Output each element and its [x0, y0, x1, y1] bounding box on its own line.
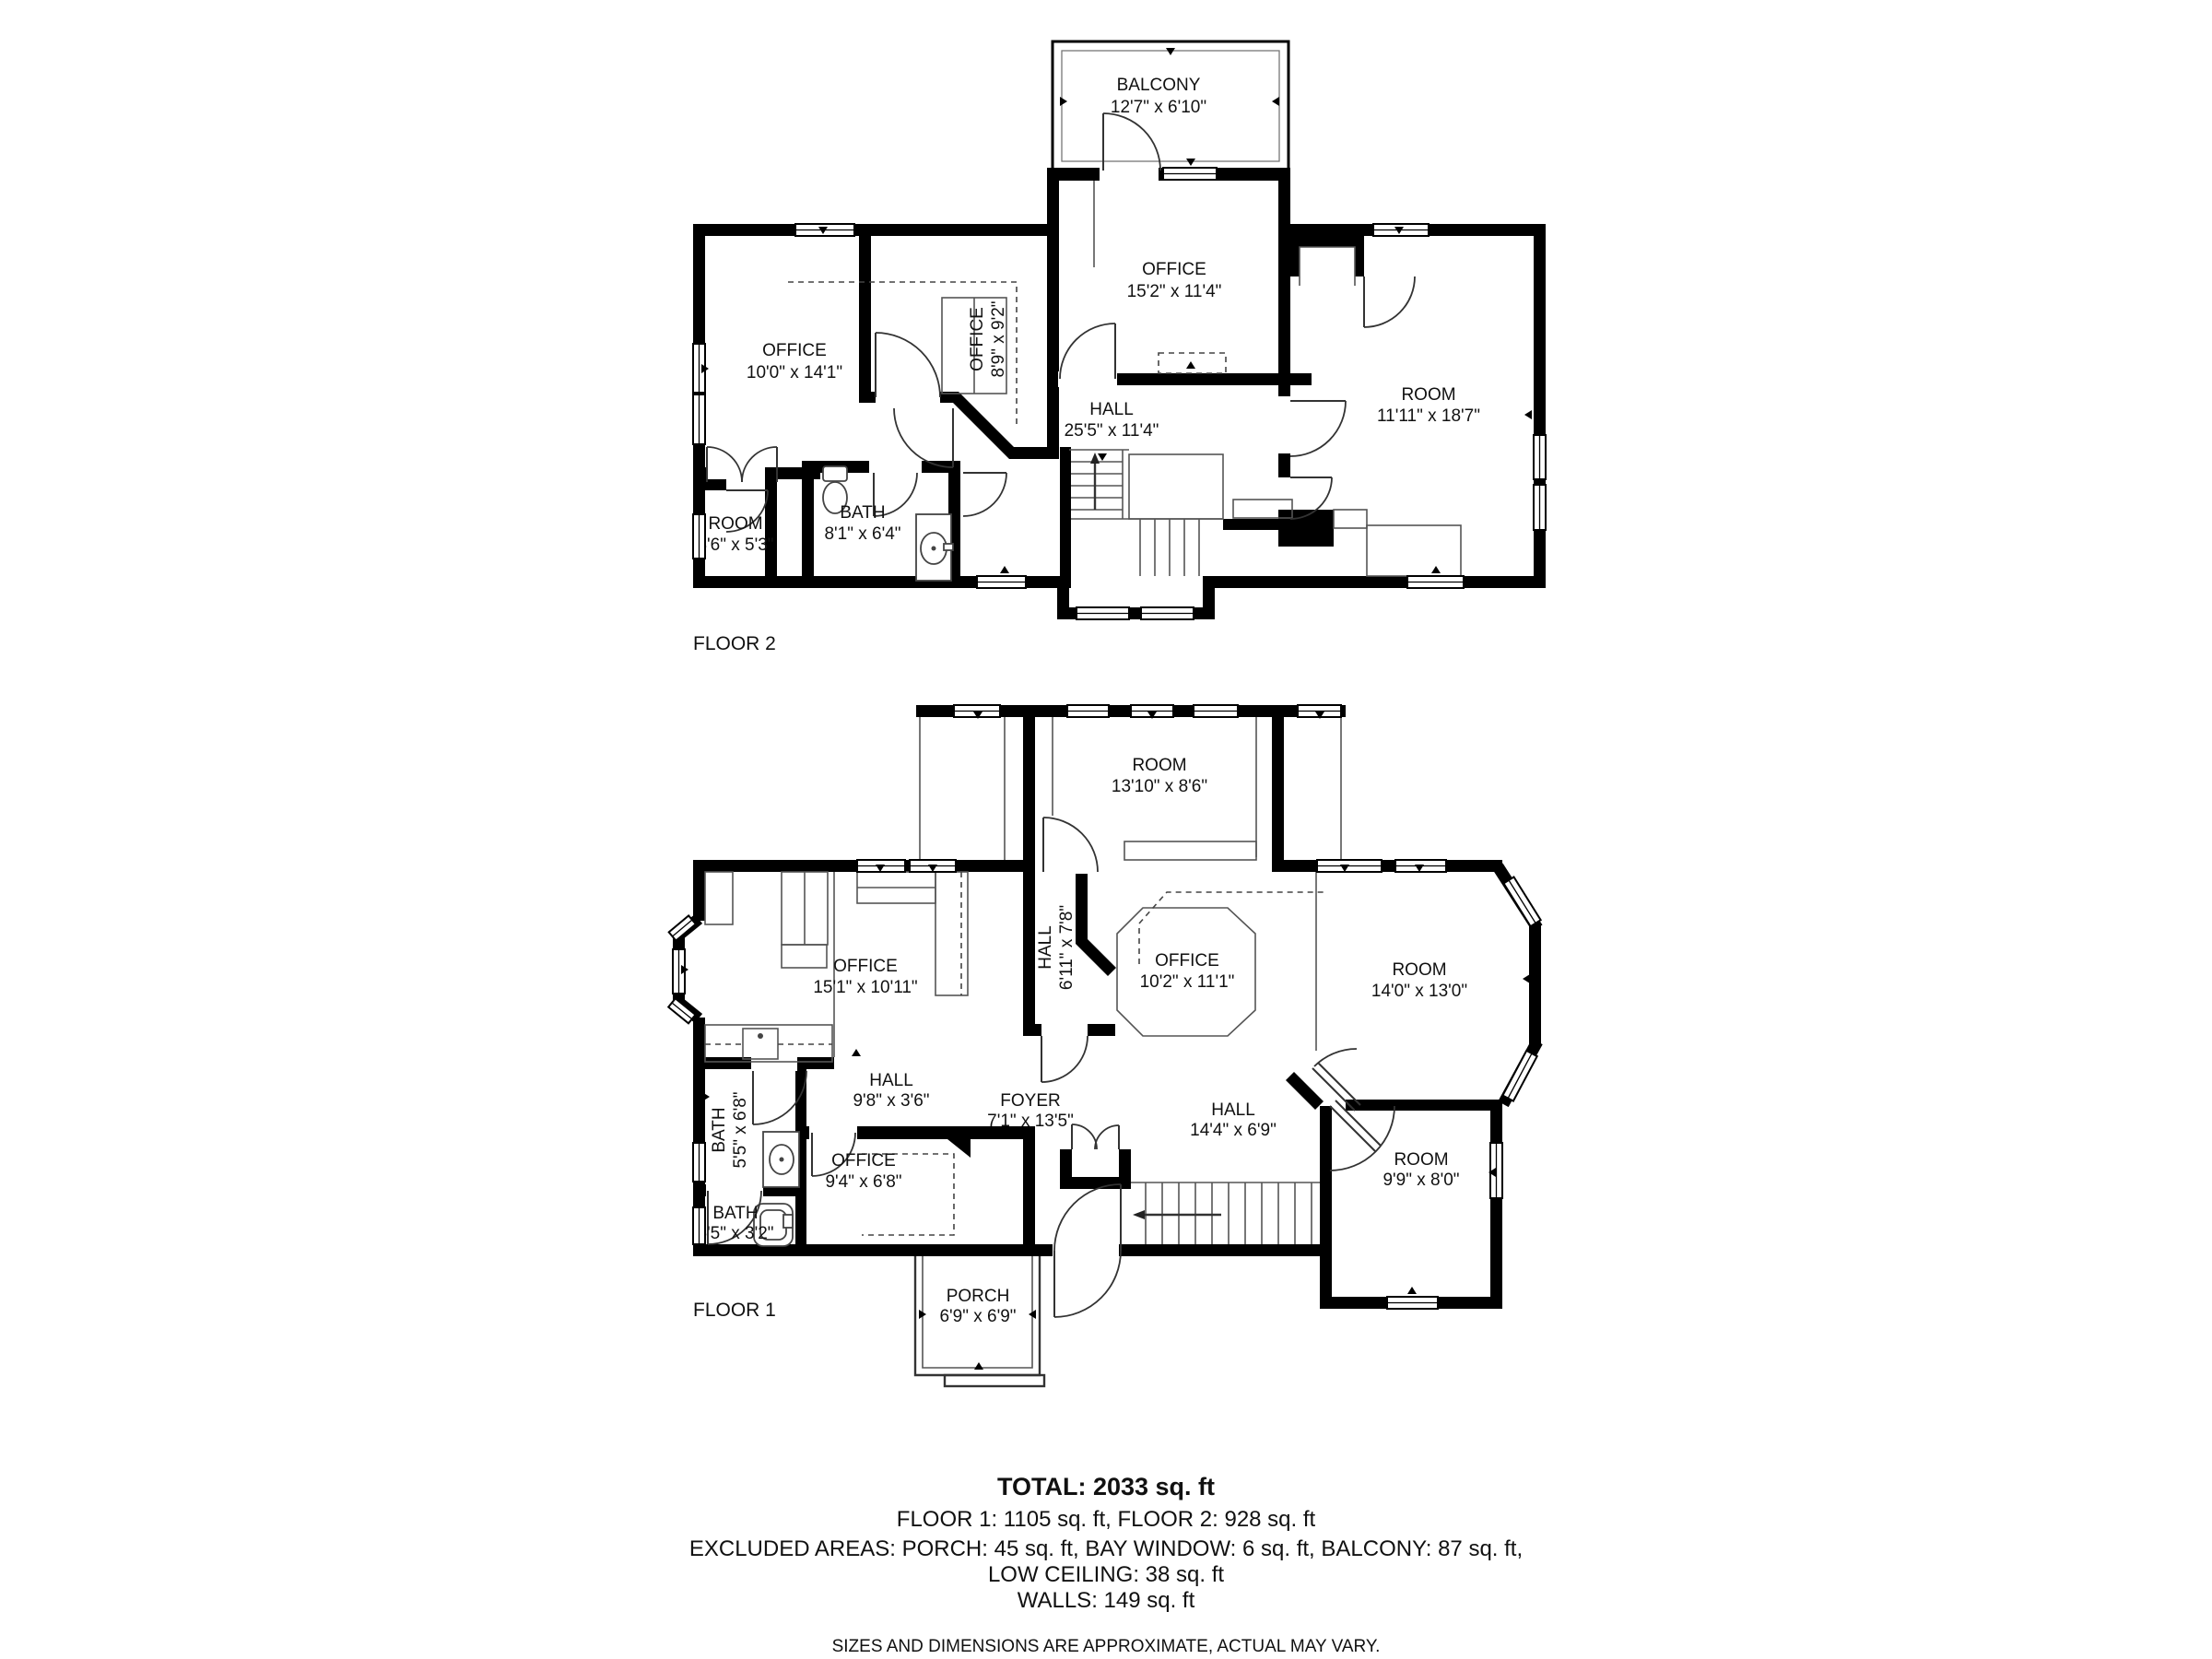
floor1-room-top-label: ROOM — [1132, 756, 1186, 775]
floor2-office-center-dims: 15'2" x 11'4" — [1127, 282, 1222, 301]
floor1-hall-west-label: HALL — [869, 1071, 913, 1090]
floor1-hall-east-dims: 14'4" x 6'9" — [1190, 1121, 1277, 1140]
floor1-room-small-dims: 9'9" x 8'0" — [1382, 1171, 1459, 1190]
floor1-hall-small-dims: 6'11" x 7'8" — [1057, 905, 1077, 990]
floorplan-image: BALCONY 12'7" x 6'10" OFFICE 15'2" x 11'… — [0, 0, 2212, 1659]
floor1-office-kitchen-label: OFFICE — [833, 957, 898, 976]
floor1-plan: ROOM 13'10" x 8'6" OFFICE 15'1" x 10'11"… — [673, 705, 1541, 1386]
floor1-porch-dims: 6'9" x 6'9" — [939, 1307, 1016, 1326]
floor2-hall-dims: 25'5" x 11'4" — [1065, 421, 1159, 441]
summary-total: TOTAL: 2033 sq. ft — [997, 1473, 1215, 1500]
floor2-office-small-dims: 8'9" x 9'2" — [989, 300, 1008, 377]
floor1-room-small-label: ROOM — [1394, 1150, 1448, 1170]
bathroom-sink-icon — [763, 1132, 799, 1187]
summary-low-ceiling: LOW CEILING: 38 sq. ft — [988, 1562, 1224, 1587]
floor1-interior-lines — [862, 717, 1341, 1235]
floor2-bath-label: BATH — [840, 503, 885, 523]
summary-disclaimer: SIZES AND DIMENSIONS ARE APPROXIMATE, AC… — [832, 1637, 1381, 1656]
floor1-office-small-dims: 9'4" x 6'8" — [825, 1172, 901, 1192]
floor2-caption: FLOOR 2 — [693, 633, 776, 654]
summary-excluded: EXCLUDED AREAS: PORCH: 45 sq. ft, BAY WI… — [689, 1536, 1523, 1561]
summary-floors: FLOOR 1: 1105 sq. ft, FLOOR 2: 928 sq. f… — [897, 1507, 1316, 1532]
floor1-porch-label: PORCH — [947, 1287, 1010, 1306]
floor2-room-small-label: ROOM — [708, 514, 762, 534]
summary-text: TOTAL: 2033 sq. ft FLOOR 1: 1105 sq. ft,… — [689, 1473, 1523, 1656]
floor1-room-top-dims: 13'10" x 8'6" — [1112, 777, 1207, 796]
floor1-foyer-label: FOYER — [1000, 1091, 1060, 1111]
stairs-down-icon — [1131, 1182, 1320, 1244]
floor1-office-kitchen-dims: 15'1" x 10'11" — [813, 978, 917, 997]
floor1-room-right-dims: 14'0" x 13'0" — [1371, 982, 1467, 1001]
floor1-bath-upper-label: BATH — [710, 1107, 729, 1152]
floor1-foyer-dims: 7'1" x 13'5" — [987, 1112, 1074, 1131]
floor2-office-center-label: OFFICE — [1142, 260, 1206, 279]
floor2-bath-dims: 8'1" x 6'4" — [824, 524, 900, 544]
summary-walls: WALLS: 149 sq. ft — [1018, 1588, 1195, 1613]
floor1-bath-upper-dims: 5'5" x 6'8" — [731, 1091, 750, 1168]
floor1-hall-west-dims: 9'8" x 3'6" — [853, 1091, 929, 1111]
stairs-up-icon — [1069, 450, 1223, 576]
floor2-room-right-label: ROOM — [1401, 385, 1455, 405]
floor1-office-center-label: OFFICE — [1155, 951, 1219, 971]
floor2-balcony-dims: 12'7" x 6'10" — [1111, 98, 1206, 117]
floor1-room-right-label: ROOM — [1392, 960, 1446, 980]
floor2-plan: BALCONY 12'7" x 6'10" OFFICE 15'2" x 11'… — [693, 41, 1546, 654]
floor2-room-right-dims: 11'11" x 18'7" — [1377, 406, 1480, 426]
sink-icon — [916, 514, 953, 581]
floor2-room-small-dims: 3'6" x 5'3" — [697, 535, 773, 555]
floor1-walls — [673, 705, 1541, 1309]
floorplan-page: BALCONY 12'7" x 6'10" OFFICE 15'2" x 11'… — [0, 0, 2212, 1659]
floor2-office-small-label: OFFICE — [968, 307, 987, 371]
floor2-balcony-label: BALCONY — [1117, 76, 1201, 95]
floor1-bath-lower-label: BATH — [712, 1204, 758, 1223]
floor1-hall-east-label: HALL — [1211, 1100, 1255, 1120]
floor1-bath-lower-dims: 5'5" x 3'2" — [697, 1224, 773, 1243]
floor2-office-left-label: OFFICE — [762, 341, 827, 360]
floor1-caption: FLOOR 1 — [693, 1300, 776, 1321]
floor2-hall-label: HALL — [1089, 400, 1134, 419]
floor1-office-small-label: OFFICE — [831, 1151, 896, 1171]
floor1-hall-small-label: HALL — [1036, 925, 1055, 970]
floor1-office-center-dims: 10'2" x 11'1" — [1140, 972, 1235, 992]
floor2-office-left-dims: 10'0" x 14'1" — [747, 363, 842, 382]
